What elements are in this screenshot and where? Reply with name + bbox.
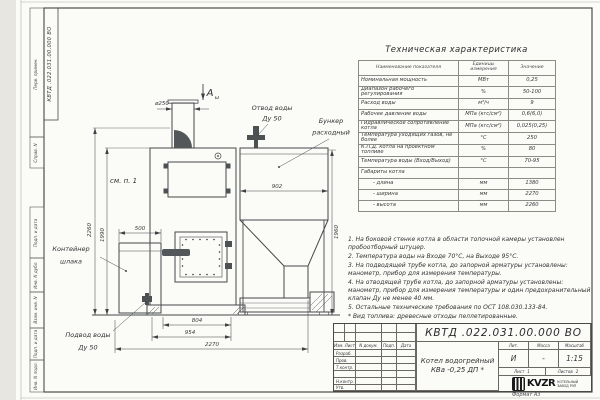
fuel-bunker — [239, 148, 329, 315]
margin-label-vzam: Взам. инв. N — [33, 296, 38, 324]
format-label: Формат А3 — [512, 392, 540, 398]
spec-row: Габариты котла — [359, 167, 556, 178]
title-block-cell — [382, 333, 397, 342]
spec-cell-name: - высота — [359, 200, 459, 211]
margin-label-invdubl: Инв. N дубл. — [33, 261, 38, 288]
spec-row: Диапазон рабочего регулирования%50-100 — [359, 87, 556, 99]
spec-cell-name: Рабочее давление воды — [359, 109, 459, 120]
door-bolts — [182, 239, 221, 276]
note-line: 2. Температура воды на Входе 70°С, на Вы… — [348, 253, 596, 261]
title-block-cell — [356, 364, 382, 371]
view-label-sub: ω — [215, 95, 219, 101]
document-name-line1: Котел водогрейный — [421, 357, 495, 366]
spec-header-row: Наименование показателя Единицы измерени… — [359, 61, 556, 76]
svg-text:Контейнер: Контейнер — [52, 245, 89, 253]
view-arrow-a: А ω — [201, 84, 219, 101]
boiler-drawing — [92, 100, 340, 315]
title-block-cell — [356, 378, 382, 385]
role-razrab: Разраб. — [334, 350, 356, 357]
spec-row: - ширинамм2270 — [359, 189, 556, 200]
margin-label-sprav: Справ. N — [33, 143, 38, 163]
mass-value: - — [529, 350, 559, 368]
title-block-cell — [397, 364, 416, 371]
spec-cell-name: Габариты котла — [359, 167, 459, 178]
lit-label: Лит. — [499, 342, 529, 350]
title-block-designation: КВТД .022.031.00.000 ВО — [416, 324, 591, 342]
title-block-cell — [334, 324, 345, 333]
spec-cell-name: - длина — [359, 178, 459, 189]
spec-cell-value: 70-95 — [509, 156, 556, 167]
spec-cell-name: Температура уходящих газов, не более — [359, 132, 459, 144]
spec-header-value: Значение — [509, 61, 556, 76]
label-water-inlet: Подвод воды Ду 50 — [65, 301, 147, 352]
spec-cell-name: К.П.Д. котла на проектном топливе — [359, 144, 459, 156]
spec-cell-name: Номинальная мощность — [359, 76, 459, 87]
title-block-cell — [397, 378, 416, 385]
title-block-cell — [356, 324, 382, 333]
title-block-cell — [356, 357, 382, 364]
spec-row: Гидравлическое сопротивление котлаМПа (к… — [359, 120, 556, 132]
spec-cell-units — [459, 167, 509, 178]
dim-1960: 1960 — [328, 150, 340, 315]
col-header-doc: N докум. — [356, 342, 382, 350]
spec-cell-value: 50-100 — [509, 87, 556, 99]
door-hinge-bottom — [225, 263, 232, 269]
company-cell: KVZR КОТЕЛЬНЫЙ ЗАВОД РЭП — [499, 376, 591, 391]
note-line: 3. На подводящей трубе котла, до запорно… — [348, 262, 596, 278]
col-header-izm: Изм. Лист — [334, 342, 356, 350]
door-handle — [162, 249, 190, 256]
dim-d250: ø250 — [154, 101, 209, 111]
title-block-cell — [334, 333, 345, 342]
slag-container — [119, 243, 161, 313]
lit-value: И — [499, 350, 529, 368]
title-block-cell — [356, 350, 382, 357]
boiler-base — [147, 305, 245, 315]
dim-902: 902 — [240, 184, 328, 193]
svg-text:Подвод воды: Подвод воды — [65, 331, 110, 339]
spec-cell-value: 0,6(6,0) — [509, 109, 556, 120]
spec-table-title: Техническая характеристика — [358, 45, 555, 55]
drawing-sheet-page: Перв. примен. Справ. N Подп. и дата Инв.… — [0, 0, 600, 400]
title-block-cell — [345, 333, 356, 342]
note-line: 4. На отводящей трубе котла, до запорной… — [348, 279, 596, 303]
role-prov: Пров. — [334, 357, 356, 364]
title-block-cell — [397, 371, 416, 378]
spec-row: - длинамм1380 — [359, 178, 556, 189]
spec-row: Расход водым³/ч9 — [359, 98, 556, 109]
fuel-note: * Вид топлива: древесные отходы пеллетир… — [348, 313, 596, 321]
role-utv: Утв. — [334, 385, 356, 391]
spec-cell-name: Диапазон рабочего регулирования — [359, 87, 459, 99]
upper-door — [164, 162, 231, 197]
title-block-cell — [356, 371, 382, 378]
door-hinge-top — [225, 241, 232, 247]
margin-label-invpodl: Инв. N подл. — [33, 362, 38, 390]
sheets-label: Листов — [558, 369, 573, 374]
spec-cell-value: 80 — [509, 144, 556, 156]
furnace-door — [162, 232, 232, 282]
kvzr-logo-text: KVZR — [527, 378, 555, 389]
svg-text:Отвод воды: Отвод воды — [252, 104, 293, 112]
svg-text:Ду 50: Ду 50 — [77, 344, 97, 352]
view-label: А — [206, 88, 214, 99]
role-blank — [334, 371, 356, 378]
scale-value: 1:15 — [559, 350, 591, 368]
spec-row: Температура уходящих газов, не более°С25… — [359, 132, 556, 144]
svg-text:2270: 2270 — [205, 342, 219, 348]
svg-text:1990: 1990 — [100, 228, 106, 242]
spec-cell-units: МПа (кгс/см²) — [459, 109, 509, 120]
spec-cell-units: °С — [459, 156, 509, 167]
title-block-cell — [382, 350, 397, 357]
note-line: 1. На боковой стенке котла в области топ… — [348, 236, 596, 252]
spec-row: - высотамм2260 — [359, 200, 556, 211]
note-line: 5. Остальные технические требования по О… — [348, 304, 596, 312]
feed-auger — [240, 292, 334, 312]
spec-cell-name: Гидравлическое сопротивление котла — [359, 120, 459, 132]
spec-table: Наименование показателя Единицы измерени… — [358, 60, 556, 212]
spec-cell-value: 0,025(0,25) — [509, 120, 556, 132]
title-block-cell — [382, 385, 397, 391]
spec-cell-units: мм — [459, 200, 509, 211]
sheets-cell: Листов 2 — [546, 368, 591, 376]
spec-cell-units: МПа (кгс/см²) — [459, 120, 509, 132]
svg-text:шлака: шлака — [60, 258, 82, 266]
title-block-cell — [397, 350, 416, 357]
sheets-value: 2 — [576, 369, 579, 374]
mass-label: Масса — [529, 342, 559, 350]
svg-text:500: 500 — [135, 226, 146, 232]
technical-notes: 1. На боковой стенке котла в области топ… — [348, 236, 596, 322]
margin-label-podp1: Подп. и дата — [33, 218, 38, 247]
role-tkontr: Т.контр. — [334, 364, 356, 371]
title-block-cell — [382, 357, 397, 364]
svg-text:расходный: расходный — [311, 129, 350, 137]
sheet-value: 1 — [527, 369, 530, 374]
title-block-cell — [382, 378, 397, 385]
spec-cell-units: мм — [459, 189, 509, 200]
spec-header-name: Наименование показателя — [359, 61, 459, 76]
spec-cell-value: 1380 — [509, 178, 556, 189]
spec-cell-units: МВт — [459, 76, 509, 87]
company-name-line1: КОТЕЛЬНЫЙ — [557, 380, 578, 384]
svg-text:902: 902 — [272, 184, 283, 190]
dim-2260: 2260 — [87, 128, 170, 315]
margin-label-perv: Перв. примен. — [33, 58, 38, 89]
svg-text:ø250: ø250 — [154, 101, 169, 107]
spec-cell-units: °С — [459, 132, 509, 144]
spec-cell-units: % — [459, 87, 509, 99]
spec-cell-units: % — [459, 144, 509, 156]
dim-500: 500 — [119, 226, 161, 242]
col-header-podp: Подп. — [382, 342, 397, 350]
svg-text:Ду 50: Ду 50 — [261, 115, 281, 123]
boiler-body — [150, 148, 236, 305]
title-block-cell — [397, 385, 416, 391]
title-block-cell — [397, 357, 416, 364]
water-outlet-fitting — [247, 126, 265, 148]
spec-cell-value: 9 — [509, 98, 556, 109]
label-bunker: Бункер расходный — [278, 117, 350, 168]
svg-text:954: 954 — [185, 330, 196, 336]
corner-stamp-designation: КВТД .022.031.00.000 ВО — [47, 26, 53, 101]
spec-cell-value — [509, 167, 556, 178]
label-see-note: см. п. 1 — [110, 177, 137, 185]
title-block-cell — [382, 371, 397, 378]
spec-cell-name: Температура воды (Вход/Выход) — [359, 156, 459, 167]
col-header-data: Дата — [397, 342, 416, 350]
title-block-cell — [397, 333, 416, 342]
document-name-line2: КВа -0,25 ДП * — [431, 366, 484, 375]
svg-text:1960: 1960 — [334, 225, 340, 239]
role-nkontr: Н.контр. — [334, 378, 356, 385]
label-slag-container: Контейнер шлака — [52, 245, 127, 272]
title-block-cell — [397, 324, 416, 333]
callout-labels: Отвод воды Ду 50 Бункер расходный Контей… — [52, 104, 349, 352]
svg-text:Бункер: Бункер — [319, 117, 344, 125]
dim-804: 804 — [163, 317, 231, 329]
sheet-cell: Лист 1 — [499, 368, 546, 376]
spec-cell-units: м³/ч — [459, 98, 509, 109]
spec-cell-value: 2270 — [509, 189, 556, 200]
spec-cell-value: 0,25 — [509, 76, 556, 87]
svg-text:2260: 2260 — [87, 223, 93, 237]
spec-cell-value: 2260 — [509, 200, 556, 211]
spec-cell-units: мм — [459, 178, 509, 189]
spec-row: К.П.Д. котла на проектном топливе%80 — [359, 144, 556, 156]
chimney — [168, 100, 198, 148]
title-block-cell — [382, 364, 397, 371]
spec-row: Температура воды (Вход/Выход)°С70-95 — [359, 156, 556, 167]
margin-label-podp2: Подп. и дата — [33, 329, 38, 358]
title-block-cell — [345, 324, 356, 333]
document-name: Котел водогрейный КВа -0,25 ДП * — [416, 342, 499, 391]
svg-text:804: 804 — [192, 318, 203, 324]
spec-cell-name: Расход воды — [359, 98, 459, 109]
spec-cell-value: 250 — [509, 132, 556, 144]
spec-cell-name: - ширина — [359, 189, 459, 200]
title-block-cell — [356, 385, 382, 391]
corner-stamp: КВТД .022.031.00.000 ВО — [44, 8, 58, 120]
sheet-label: Лист — [514, 369, 524, 374]
scale-label: Масштаб — [559, 342, 591, 350]
margin-column-labels: Перв. примен. Справ. N Подп. и дата Инв.… — [33, 58, 38, 390]
kvzr-logo-icon — [512, 377, 525, 391]
title-block-cell — [382, 324, 397, 333]
company-name-line2: ЗАВОД РЭП — [557, 384, 578, 388]
spec-row: Номинальная мощностьМВт0,25 — [359, 76, 556, 87]
flue-damper — [174, 130, 192, 148]
spec-row: Рабочее давление водыМПа (кгс/см²)0,6(6,… — [359, 109, 556, 120]
title-block-cell — [356, 333, 382, 342]
title-block: КВТД .022.031.00.000 ВО Изм. Лист N доку… — [333, 323, 592, 392]
spec-header-units: Единицы измерения — [459, 61, 509, 76]
